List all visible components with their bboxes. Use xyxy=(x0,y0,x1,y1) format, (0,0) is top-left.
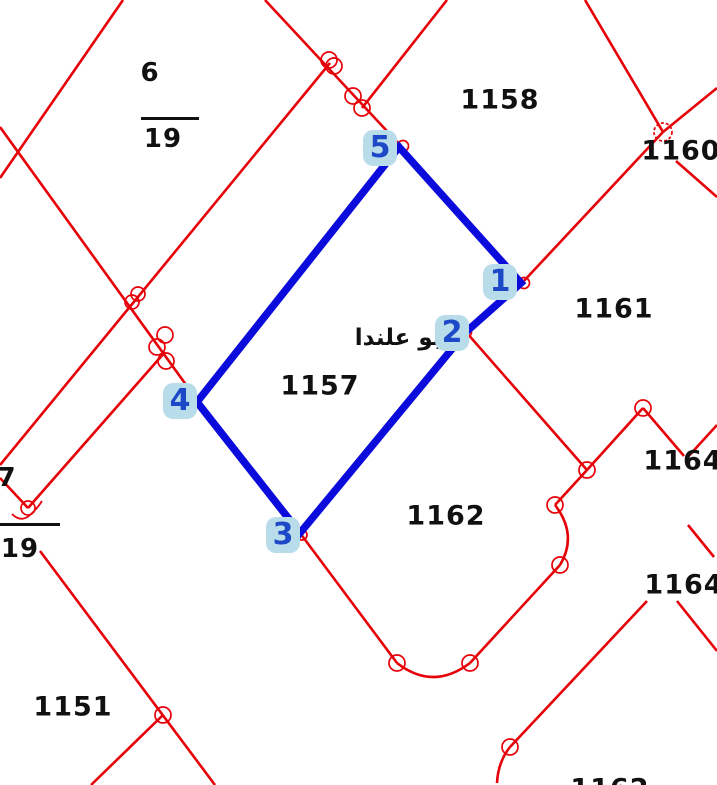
boundary-segment xyxy=(587,408,643,470)
boundary-segment xyxy=(688,525,714,557)
survey-point xyxy=(157,327,173,343)
vertex-marker-1[interactable]: 1 xyxy=(483,264,517,300)
boundary-segment xyxy=(585,0,663,132)
survey-point xyxy=(149,339,165,355)
cadastral-map-canvas[interactable]: 6 19 7 19 1158 1160 1161 ابو علندا 1157 … xyxy=(0,0,717,785)
fraction-bar xyxy=(0,523,60,526)
boundary-segment xyxy=(677,601,717,651)
vertex-marker-2[interactable]: 2 xyxy=(435,315,469,351)
block-fraction-denominator: 19 xyxy=(144,124,182,154)
boundary-segment xyxy=(362,0,447,108)
parcel-label-1158: 1158 xyxy=(460,85,539,116)
parcel-label-1157: 1157 xyxy=(280,371,359,402)
boundary-segment xyxy=(28,352,165,508)
survey-squiggle-mark xyxy=(12,501,42,519)
block-fraction-denominator: 19 xyxy=(1,534,39,564)
parcel-label-1162-bottom: 1162 xyxy=(570,774,649,785)
boundary-segment xyxy=(265,0,399,144)
vertex-marker-4[interactable]: 4 xyxy=(163,383,197,419)
fraction-bar xyxy=(141,117,199,120)
boundary-segment xyxy=(466,332,587,470)
vertex-marker-3[interactable]: 3 xyxy=(266,517,300,553)
boundary-segment xyxy=(663,88,717,132)
vertex-marker-5[interactable]: 5 xyxy=(363,130,397,166)
parcel-label-1161: 1161 xyxy=(574,294,653,325)
boundary-segment xyxy=(91,715,163,785)
boundary-curve xyxy=(397,663,470,677)
block-fraction-numerator: 6 xyxy=(140,58,159,88)
parcel-label-1164-upper: 1164 xyxy=(643,446,717,477)
boundary-curve xyxy=(555,505,568,565)
parcel-label-1164-lower: 1164 xyxy=(644,570,717,601)
boundary-segment xyxy=(555,470,587,505)
parcel-label-1162: 1162 xyxy=(406,501,485,532)
parcel-label-1151: 1151 xyxy=(33,692,112,723)
boundary-segment xyxy=(300,533,397,663)
boundary-segment xyxy=(0,127,197,400)
block-fraction-numerator: 7 xyxy=(0,463,17,493)
parcel-label-1160: 1160 xyxy=(641,136,717,167)
boundary-segment xyxy=(470,565,560,663)
boundary-segment xyxy=(510,601,647,747)
